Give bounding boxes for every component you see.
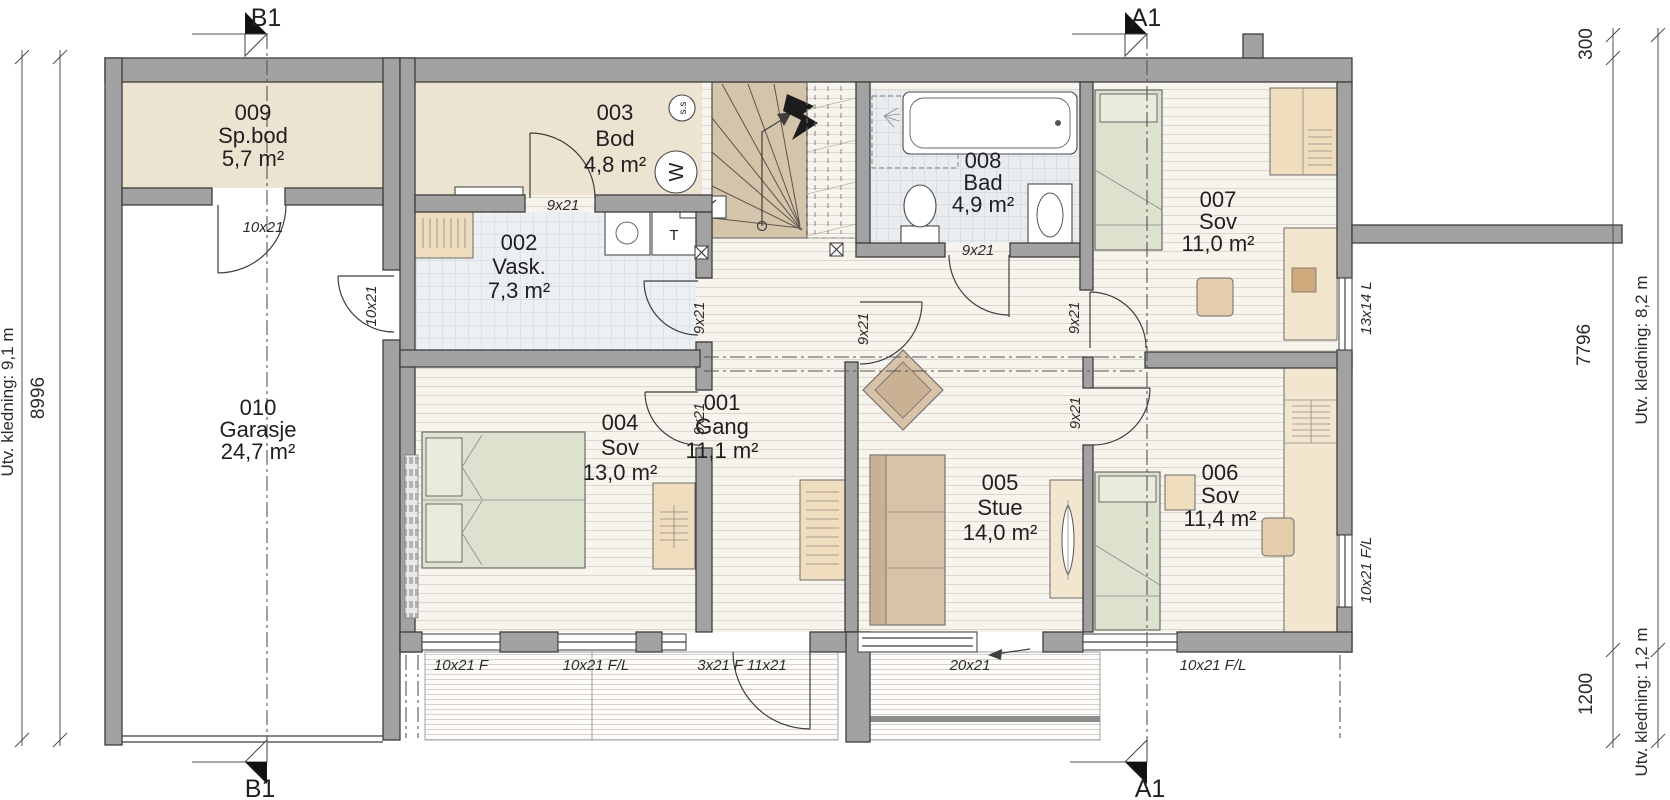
- hall-furniture: [800, 480, 845, 580]
- svg-text:004: 004: [602, 410, 639, 435]
- svg-text:002: 002: [501, 230, 538, 255]
- washing-machine: [605, 212, 650, 255]
- ss-symbol-label: s.s: [678, 102, 689, 115]
- sofa-back: [870, 455, 886, 625]
- svg-text:4,9 m²: 4,9 m²: [952, 192, 1014, 217]
- wall-bottom-1: [400, 632, 422, 652]
- section-label-a1-top: A1: [1131, 4, 1162, 32]
- wall-bath-bottom-right: [1010, 243, 1080, 257]
- label-door-009: 10x21: [243, 219, 284, 236]
- svg-text:005: 005: [982, 470, 1019, 495]
- svg-text:7,3 m²: 7,3 m²: [488, 278, 550, 303]
- desk-chair: [1197, 278, 1233, 316]
- desk-chair: [1262, 518, 1294, 556]
- section-label-a1-bottom: A1: [1135, 775, 1166, 800]
- label-door-002: 9x21: [691, 302, 708, 335]
- wall-005-006: [1083, 445, 1093, 632]
- dim-8996: 8996: [28, 377, 49, 419]
- svg-text:13,0 m²: 13,0 m²: [583, 460, 658, 485]
- wall-009-bottom-left: [122, 188, 212, 205]
- wall-right-middle: [1337, 350, 1352, 535]
- wall-garage-right-upper: [383, 58, 400, 270]
- svg-text:24,7 m²: 24,7 m²: [221, 439, 296, 464]
- bathtub: [903, 92, 1077, 154]
- wall-hall-left-3: [696, 448, 712, 632]
- label-window-10x21FL-006: 10x21 F/L: [1180, 657, 1247, 674]
- wall-right-upper: [1337, 82, 1352, 278]
- label-window-10x21F: 10x21 F: [434, 657, 489, 674]
- hall-wardrobe: [800, 480, 845, 580]
- wall-005-006-stub: [1083, 357, 1093, 388]
- wall-extension-right: [1352, 225, 1622, 243]
- wall-vask-bottom: [400, 350, 700, 367]
- svg-text:14,0 m²: 14,0 m²: [963, 520, 1038, 545]
- wall-garage-left: [105, 58, 122, 745]
- staircase: [712, 82, 818, 238]
- label-door-008: 9x21: [962, 242, 995, 259]
- pillow: [426, 504, 462, 562]
- svg-text:Sov: Sov: [1201, 483, 1239, 508]
- svg-text:Vask.: Vask.: [492, 254, 545, 279]
- pillow: [426, 438, 462, 496]
- wall-bottom-6: [1177, 632, 1352, 652]
- svg-text:5,7 m²: 5,7 m²: [222, 146, 284, 171]
- dim-300: 300: [1576, 28, 1597, 60]
- terrace-step: [870, 716, 1100, 722]
- water-heater-label: W: [666, 162, 688, 181]
- wall-007-left: [1080, 82, 1093, 290]
- label-sliding-door: 20x21: [949, 657, 991, 674]
- label-door-006: 9x21: [1067, 397, 1084, 430]
- pillow: [1100, 94, 1157, 122]
- wall-009-bottom-right: [285, 188, 383, 205]
- label-door-005: 9x21: [855, 313, 872, 346]
- wall-bath-bottom-left: [856, 243, 945, 257]
- desk-lamp: [1292, 268, 1316, 292]
- wall-top-stub: [1243, 34, 1263, 58]
- dim-7796: 7796: [1574, 324, 1595, 366]
- nightstand: [1165, 475, 1195, 510]
- svg-text:003: 003: [597, 100, 634, 125]
- desk-counter: [1284, 368, 1337, 632]
- wardrobe: [1270, 88, 1337, 175]
- wall-bath-left: [856, 82, 870, 243]
- wall-bottom-5: [1043, 632, 1083, 652]
- bathtub-drain: [1055, 120, 1061, 126]
- wall-006-007: [1145, 352, 1352, 368]
- section-label-b1-bottom: B1: [245, 775, 276, 800]
- label-door-004: 9x21: [691, 403, 708, 436]
- svg-text:11,1 m²: 11,1 m²: [686, 438, 759, 463]
- floor-plan-page: T s.s W: [0, 0, 1670, 800]
- svg-text:006: 006: [1202, 460, 1239, 485]
- svg-text:009: 009: [235, 100, 272, 125]
- dim-cladding-right-lower: Utv. kledning: 1,2 m: [1632, 628, 1651, 777]
- section-label-b1-top: B1: [251, 4, 282, 32]
- svg-text:11,0 m²: 11,0 m²: [1182, 231, 1255, 256]
- dim-1200: 1200: [1576, 673, 1597, 715]
- svg-text:Sp.bod: Sp.bod: [218, 123, 288, 148]
- svg-text:Bod: Bod: [595, 126, 634, 151]
- label-window-10x21FL-right: 10x21 F/L: [1358, 537, 1375, 604]
- dim-cladding-right-upper: Utv. kledning: 8,2 m: [1632, 276, 1651, 425]
- floor-plan-svg: T s.s W: [0, 0, 1670, 800]
- wall-hall-left-1: [696, 212, 712, 278]
- dim-cladding-left: Utv. kledning: 9,1 m: [0, 328, 17, 477]
- svg-text:Sov: Sov: [601, 435, 639, 460]
- wall-top: [105, 58, 1352, 82]
- toilet-bowl: [904, 185, 936, 227]
- label-door-garage: 10x21: [363, 286, 380, 327]
- wall-003-bottom-right: [595, 195, 712, 212]
- wall-bottom-2: [500, 632, 558, 652]
- wall-003-bottom-left: [415, 195, 525, 212]
- label-door-007: 9x21: [1066, 302, 1083, 335]
- svg-text:4,8 m²: 4,8 m²: [584, 152, 646, 177]
- label-window-13x14L: 13x14 L: [1358, 281, 1375, 334]
- label-entrance-door: 3x21 F 11x21: [697, 657, 787, 674]
- svg-text:Stue: Stue: [977, 495, 1022, 520]
- label-door-003: 9x21: [547, 197, 580, 214]
- svg-text:11,4 m²: 11,4 m²: [1184, 506, 1257, 531]
- sliding-door-panel: [858, 632, 977, 652]
- label-window-10x21FL-left: 10x21 F/L: [563, 657, 630, 674]
- wall-hall-stue: [845, 362, 858, 632]
- svg-text:001: 001: [704, 390, 741, 415]
- wall-hatched-segment: [405, 455, 418, 618]
- wall-bottom-3: [636, 632, 662, 652]
- wall-garage-right-lower: [383, 340, 400, 740]
- dryer-label: T: [669, 227, 678, 244]
